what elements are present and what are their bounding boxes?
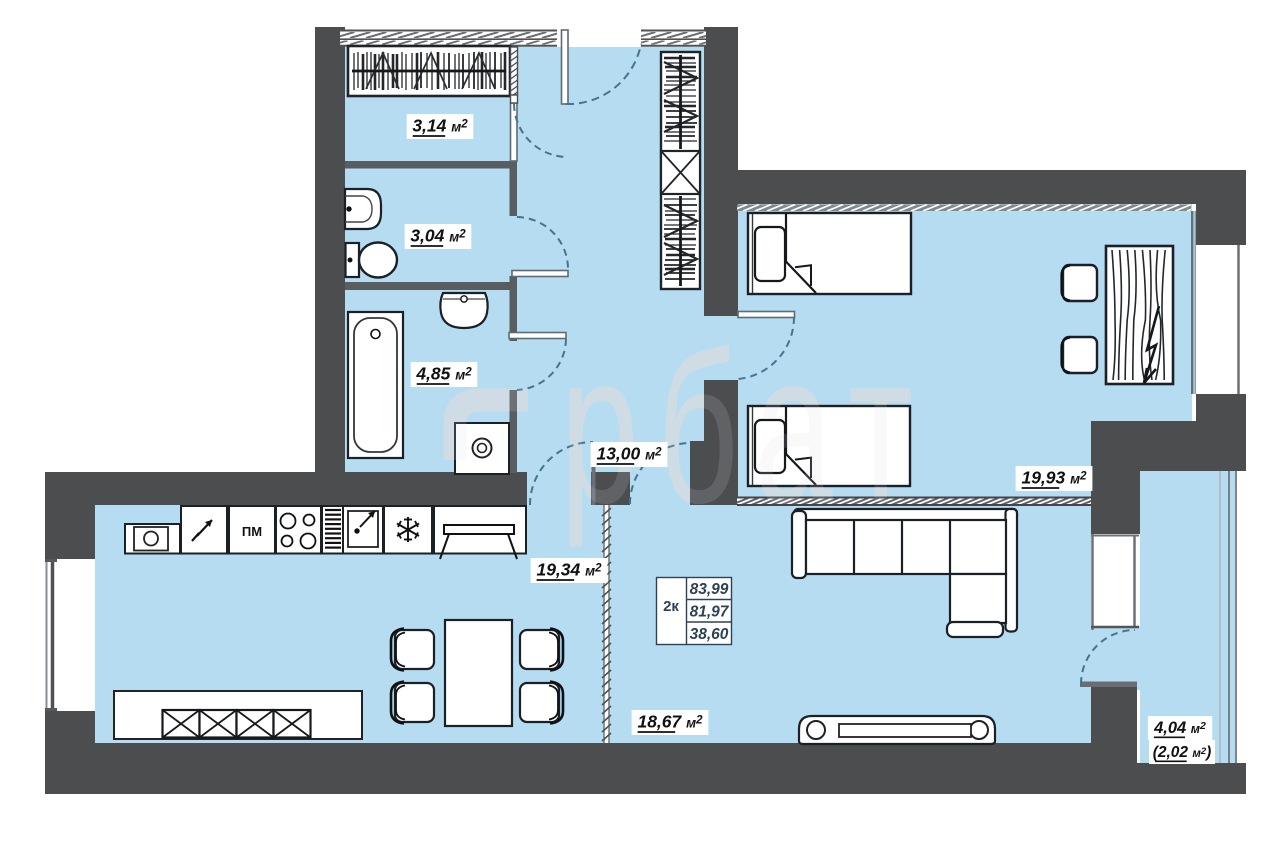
svg-text:38,60: 38,60	[690, 626, 729, 643]
svg-text:4,04 м2: 4,04 м2	[1153, 719, 1206, 737]
svg-text:2к: 2к	[663, 598, 679, 615]
svg-text:ПМ: ПМ	[242, 524, 262, 539]
svg-text:рбат: рбат	[560, 307, 932, 548]
svg-text:83,99: 83,99	[690, 581, 729, 598]
svg-text:81,97: 81,97	[690, 604, 730, 621]
